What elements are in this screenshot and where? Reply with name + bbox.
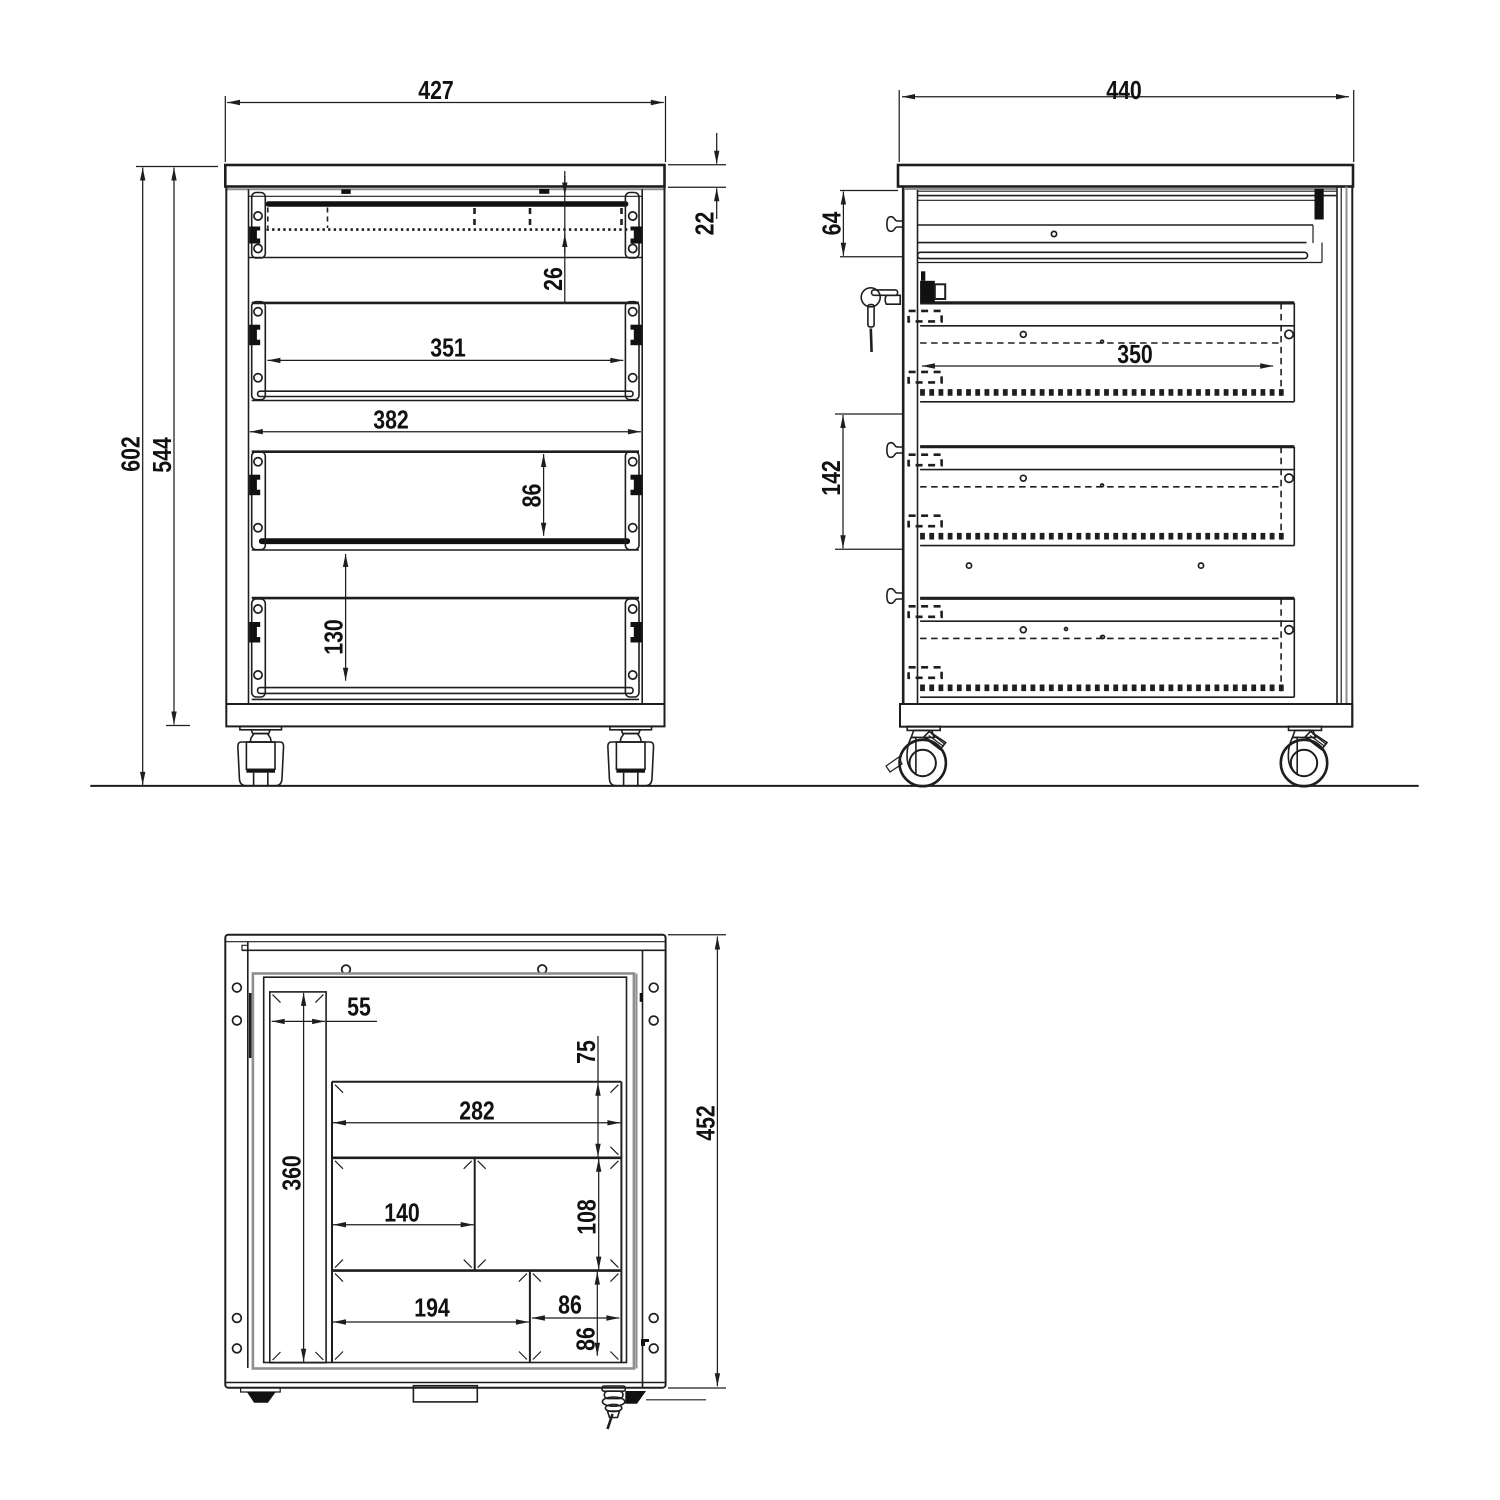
svg-text:282: 282 (459, 1097, 495, 1127)
svg-text:142: 142 (817, 460, 847, 496)
svg-text:55: 55 (347, 993, 371, 1023)
svg-text:75: 75 (572, 1040, 602, 1064)
svg-text:602: 602 (117, 436, 147, 472)
svg-text:130: 130 (320, 619, 350, 655)
svg-text:382: 382 (373, 406, 409, 436)
svg-text:140: 140 (384, 1199, 420, 1229)
svg-text:64: 64 (817, 211, 847, 235)
svg-text:350: 350 (1117, 340, 1153, 370)
svg-text:86: 86 (518, 484, 548, 508)
svg-text:26: 26 (539, 267, 569, 291)
svg-text:360: 360 (278, 1155, 308, 1191)
svg-text:108: 108 (573, 1199, 603, 1235)
svg-text:351: 351 (430, 334, 466, 364)
svg-text:22: 22 (691, 212, 721, 236)
svg-text:194: 194 (414, 1294, 450, 1324)
svg-text:544: 544 (148, 437, 178, 473)
svg-text:427: 427 (418, 76, 454, 106)
svg-text:86: 86 (571, 1327, 601, 1351)
svg-text:86: 86 (558, 1291, 582, 1321)
svg-text:440: 440 (1106, 76, 1142, 106)
svg-text:452: 452 (691, 1105, 721, 1141)
